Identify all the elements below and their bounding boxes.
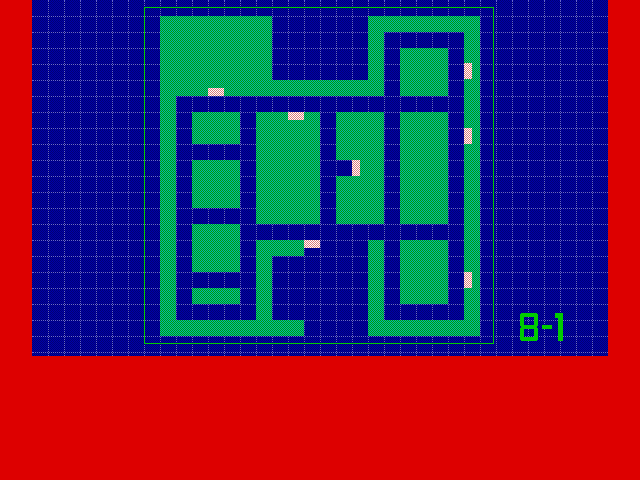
grid-line-vertical (544, 0, 545, 356)
grid-line-vertical (112, 0, 113, 356)
seven-segment-bar (555, 313, 559, 318)
grid-line-vertical (64, 0, 65, 356)
grid-line-vertical (576, 0, 577, 356)
grid-line-horizontal (32, 352, 608, 353)
map-boundary-outline (144, 7, 494, 344)
grid-line-vertical (496, 0, 497, 356)
grid-line-vertical (48, 0, 49, 356)
grid-line-vertical (592, 0, 593, 356)
grid-line-vertical (512, 0, 513, 356)
seven-segment-bar (542, 325, 552, 329)
map-grid-field (32, 0, 608, 356)
grid-line-vertical (128, 0, 129, 356)
grid-line-vertical (96, 0, 97, 356)
grid-line-vertical (560, 0, 561, 356)
grid-line-vertical (80, 0, 81, 356)
seven-segment-bar (521, 325, 537, 329)
floor-level-label (520, 313, 566, 341)
seven-segment-bar (520, 328, 524, 340)
game-screen (0, 0, 640, 480)
grid-line-vertical (528, 0, 529, 356)
